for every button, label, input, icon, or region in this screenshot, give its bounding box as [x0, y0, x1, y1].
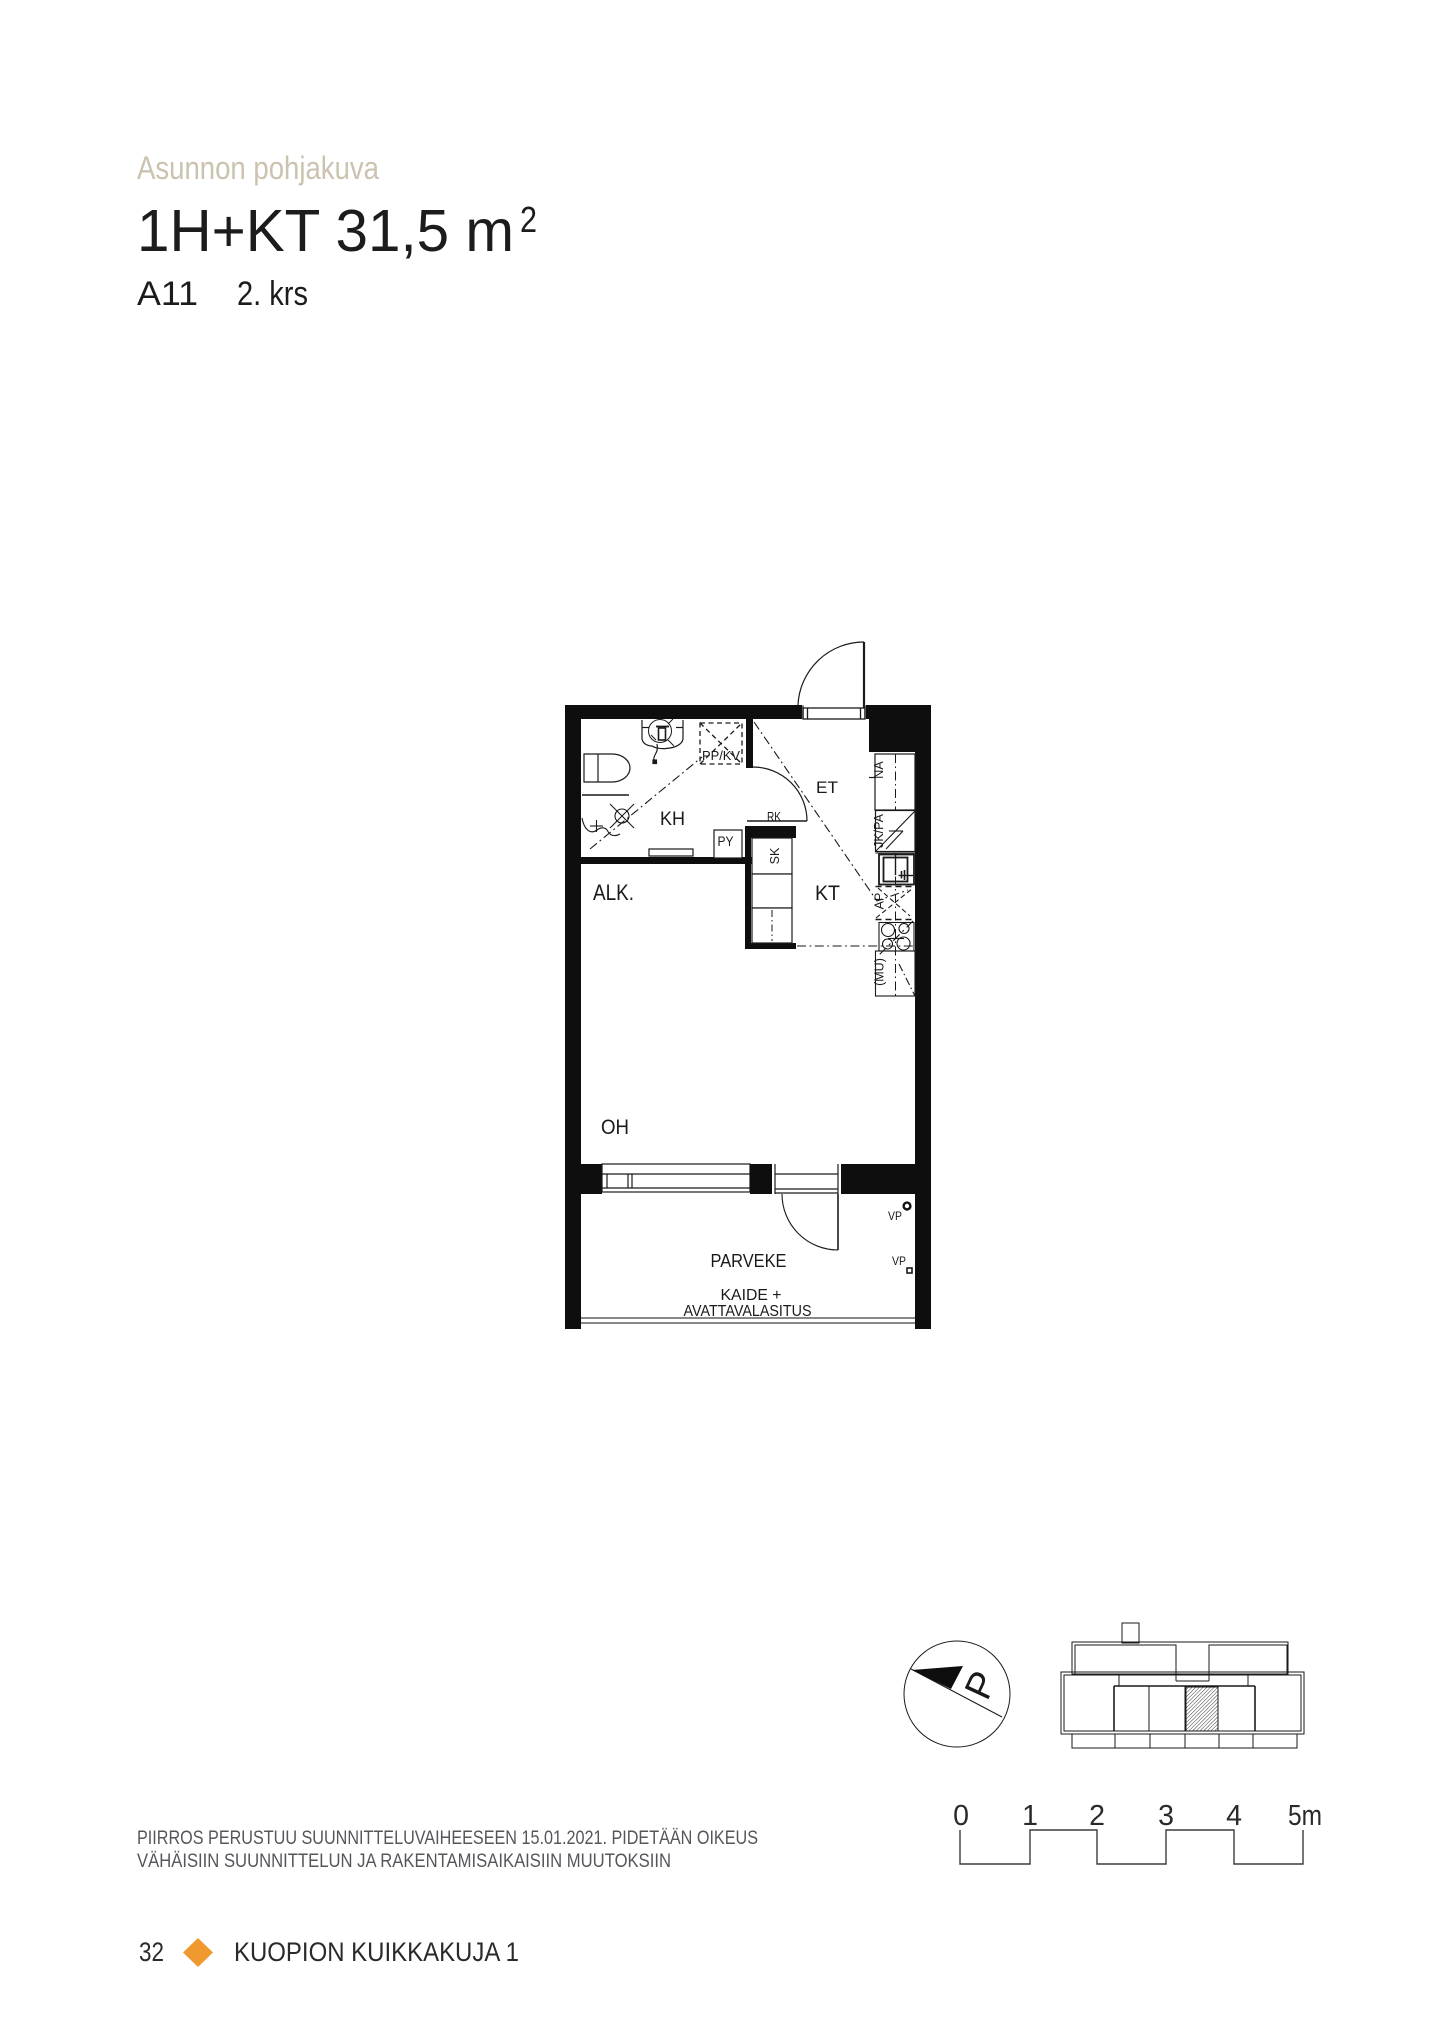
svg-text:RK: RK	[767, 809, 781, 824]
svg-text:(MU): (MU)	[873, 958, 887, 986]
svg-text:AP: AP	[873, 893, 887, 910]
svg-text:2: 2	[1089, 1800, 1105, 1832]
svg-text:A11: A11	[137, 275, 198, 313]
svg-text:2: 2	[520, 199, 537, 240]
svg-text:ET: ET	[816, 778, 838, 797]
svg-text:SK: SK	[768, 847, 782, 864]
svg-text:JK/PA: JK/PA	[872, 813, 886, 847]
svg-text:1H+KT 31,5 m: 1H+KT 31,5 m	[137, 198, 514, 264]
svg-text:PP/KV: PP/KV	[702, 748, 740, 763]
svg-text:3: 3	[1158, 1800, 1174, 1832]
svg-text:PY: PY	[718, 834, 734, 849]
svg-text:AVATTAVALASITUS: AVATTAVALASITUS	[684, 1303, 812, 1320]
svg-text:5m: 5m	[1288, 1800, 1322, 1832]
svg-text:OH: OH	[601, 1115, 629, 1139]
svg-text:4: 4	[1226, 1800, 1242, 1832]
svg-text:1: 1	[1022, 1800, 1038, 1832]
svg-text:Asunnon pohjakuva: Asunnon pohjakuva	[137, 150, 379, 186]
svg-text:PIIRROS PERUSTUU SUUNNITTELUVA: PIIRROS PERUSTUU SUUNNITTELUVAIHEESEEN 1…	[137, 1828, 758, 1849]
svg-text:KH: KH	[660, 808, 685, 830]
svg-text:VÄHÄISIIN SUUNNITTELUN JA RAKE: VÄHÄISIIN SUUNNITTELUN JA RAKENTAMISAIKA…	[137, 1851, 671, 1872]
svg-text:KUOPION KUIKKAKUJA 1: KUOPION KUIKKAKUJA 1	[234, 1937, 519, 1967]
svg-text:VP: VP	[888, 1209, 902, 1223]
svg-text:NA: NA	[872, 761, 886, 779]
svg-text:KAIDE +: KAIDE +	[721, 1287, 782, 1304]
svg-text:VP: VP	[892, 1254, 906, 1268]
svg-text:2. krs: 2. krs	[237, 275, 308, 313]
svg-text:KT: KT	[815, 882, 840, 905]
svg-text:PARVEKE: PARVEKE	[711, 1251, 787, 1271]
svg-text:0: 0	[953, 1800, 969, 1832]
svg-text:32: 32	[139, 1937, 164, 1967]
svg-text:ALK.: ALK.	[593, 880, 634, 905]
